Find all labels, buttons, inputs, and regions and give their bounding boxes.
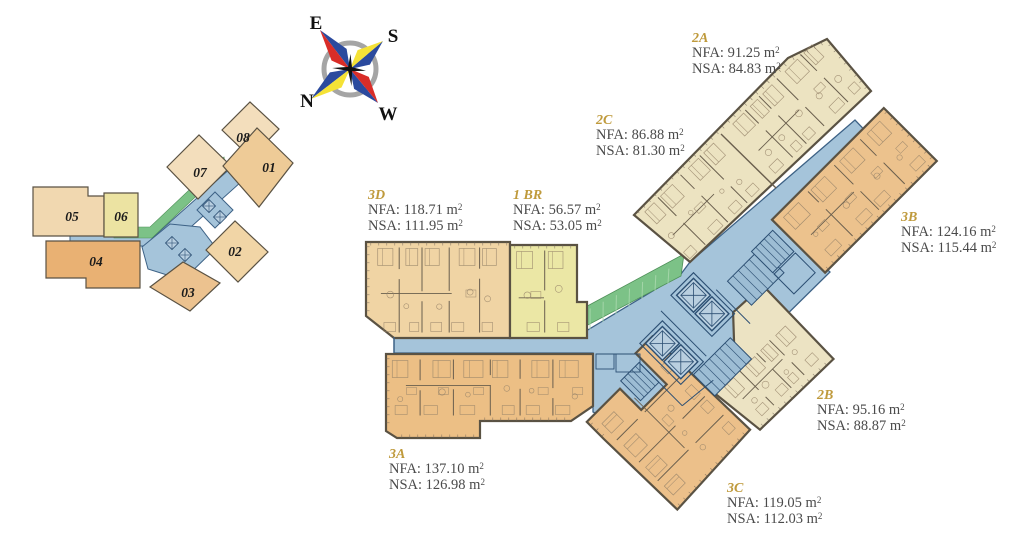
svg-text:NSA: 84.83 m2: NSA: 84.83 m2 — [692, 61, 781, 77]
svg-text:NFA: 119.05 m2: NFA: 119.05 m2 — [727, 495, 821, 511]
svg-text:07: 07 — [193, 165, 208, 180]
svg-text:NFA: 56.57 m2: NFA: 56.57 m2 — [513, 202, 601, 218]
svg-text:N: N — [300, 91, 314, 112]
svg-text:02: 02 — [228, 244, 242, 259]
svg-text:05: 05 — [65, 209, 79, 224]
svg-text:06: 06 — [114, 209, 128, 224]
svg-text:2B: 2B — [816, 388, 833, 403]
svg-text:NFA: 118.71 m2: NFA: 118.71 m2 — [368, 202, 462, 218]
svg-text:2A: 2A — [691, 31, 708, 46]
svg-text:E: E — [310, 13, 323, 34]
svg-text:NSA: 111.95 m2: NSA: 111.95 m2 — [368, 218, 463, 234]
svg-text:NSA: 53.05 m2: NSA: 53.05 m2 — [513, 218, 602, 234]
svg-text:NFA: 86.88 m2: NFA: 86.88 m2 — [596, 127, 684, 143]
svg-text:01: 01 — [262, 160, 276, 175]
svg-text:2C: 2C — [595, 113, 613, 128]
svg-text:1 BR: 1 BR — [513, 188, 542, 203]
svg-text:W: W — [379, 104, 398, 125]
svg-text:NFA: 137.10 m2: NFA: 137.10 m2 — [389, 461, 484, 477]
svg-text:NSA: 115.44 m2: NSA: 115.44 m2 — [901, 240, 996, 256]
svg-text:3D: 3D — [367, 188, 385, 203]
svg-text:NSA: 112.03 m2: NSA: 112.03 m2 — [727, 511, 822, 527]
svg-text:NSA: 126.98 m2: NSA: 126.98 m2 — [389, 477, 485, 493]
svg-text:NFA: 124.16 m2: NFA: 124.16 m2 — [901, 224, 996, 240]
svg-text:3B: 3B — [900, 210, 917, 225]
svg-text:NSA: 81.30 m2: NSA: 81.30 m2 — [596, 143, 685, 159]
svg-text:NFA: 91.25 m2: NFA: 91.25 m2 — [692, 45, 780, 61]
svg-text:04: 04 — [89, 254, 103, 269]
svg-text:08: 08 — [236, 130, 250, 145]
svg-text:NSA: 88.87 m2: NSA: 88.87 m2 — [817, 418, 906, 434]
svg-text:S: S — [388, 26, 399, 47]
svg-text:3C: 3C — [726, 481, 744, 496]
svg-text:NFA: 95.16 m2: NFA: 95.16 m2 — [817, 402, 905, 418]
svg-text:03: 03 — [181, 285, 195, 300]
svg-text:3A: 3A — [388, 447, 405, 462]
